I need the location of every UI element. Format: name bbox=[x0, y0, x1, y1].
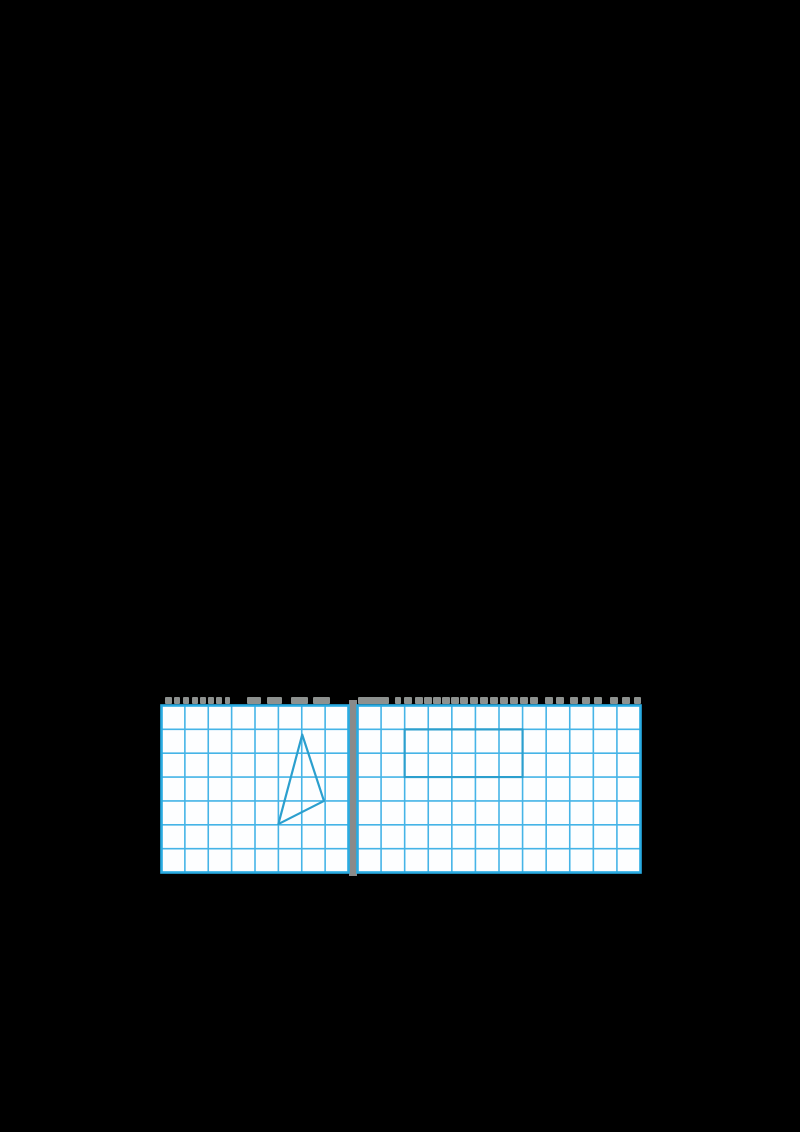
workbook-page bbox=[0, 0, 800, 1132]
left-practice-grid bbox=[160, 704, 350, 874]
right-practice-grid bbox=[356, 704, 642, 874]
